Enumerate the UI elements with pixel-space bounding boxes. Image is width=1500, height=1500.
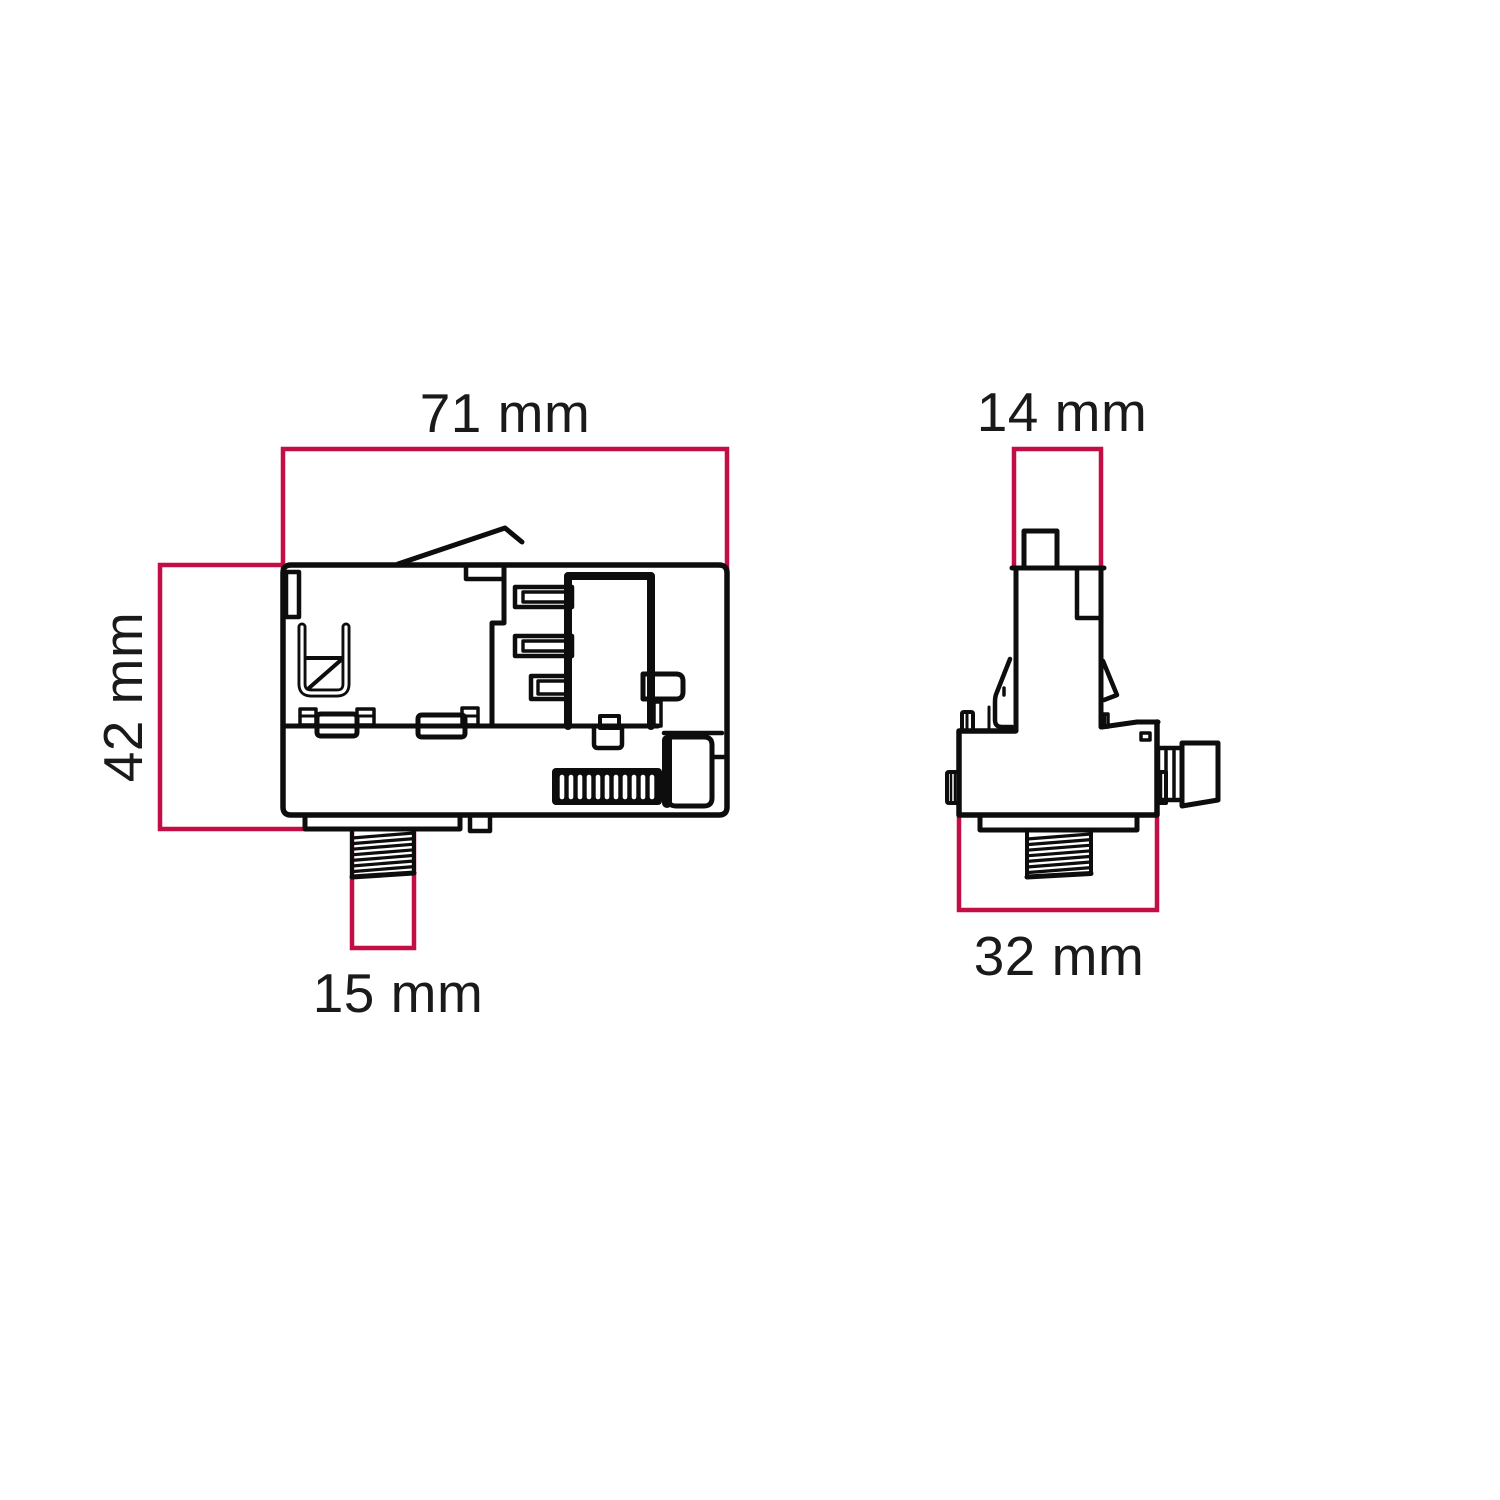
contact-clip [302,627,346,693]
interior-divider [492,565,504,726]
label-base-32mm: 32 mm [974,925,1145,987]
terminal-block [568,576,651,726]
side-body [947,707,1158,815]
stem-top-block [1024,531,1057,568]
label-top-14mm: 14 mm [977,381,1148,443]
side-base-plate [980,816,1137,830]
dimension-labels: 71 mm 42 mm 15 mm 14 mm 32 mm [92,381,1147,1024]
top-left-notch [286,572,299,617]
track-adapter-dimension-diagram: 71 mm 42 mm 15 mm 14 mm 32 mm [0,0,1500,1500]
technical-drawing-page: 71 mm 42 mm 15 mm 14 mm 32 mm [0,0,1500,1500]
label-thread-15mm: 15 mm [313,962,484,1024]
stem [1012,568,1104,731]
label-width-71mm: 71 mm [420,382,591,444]
ribbed-grille [552,768,662,805]
threaded-stud-front [352,830,414,877]
side-connector [1157,743,1218,806]
dim-bracket-71mm [283,449,727,567]
label-height-42mm: 42 mm [92,612,154,783]
release-lever [398,528,522,564]
threaded-stud-side [1027,831,1091,877]
front-view [283,528,727,877]
division-line-clips [300,708,478,737]
side-view [947,531,1218,877]
lower-right-pocket [667,737,727,806]
contact-prongs [515,587,683,699]
